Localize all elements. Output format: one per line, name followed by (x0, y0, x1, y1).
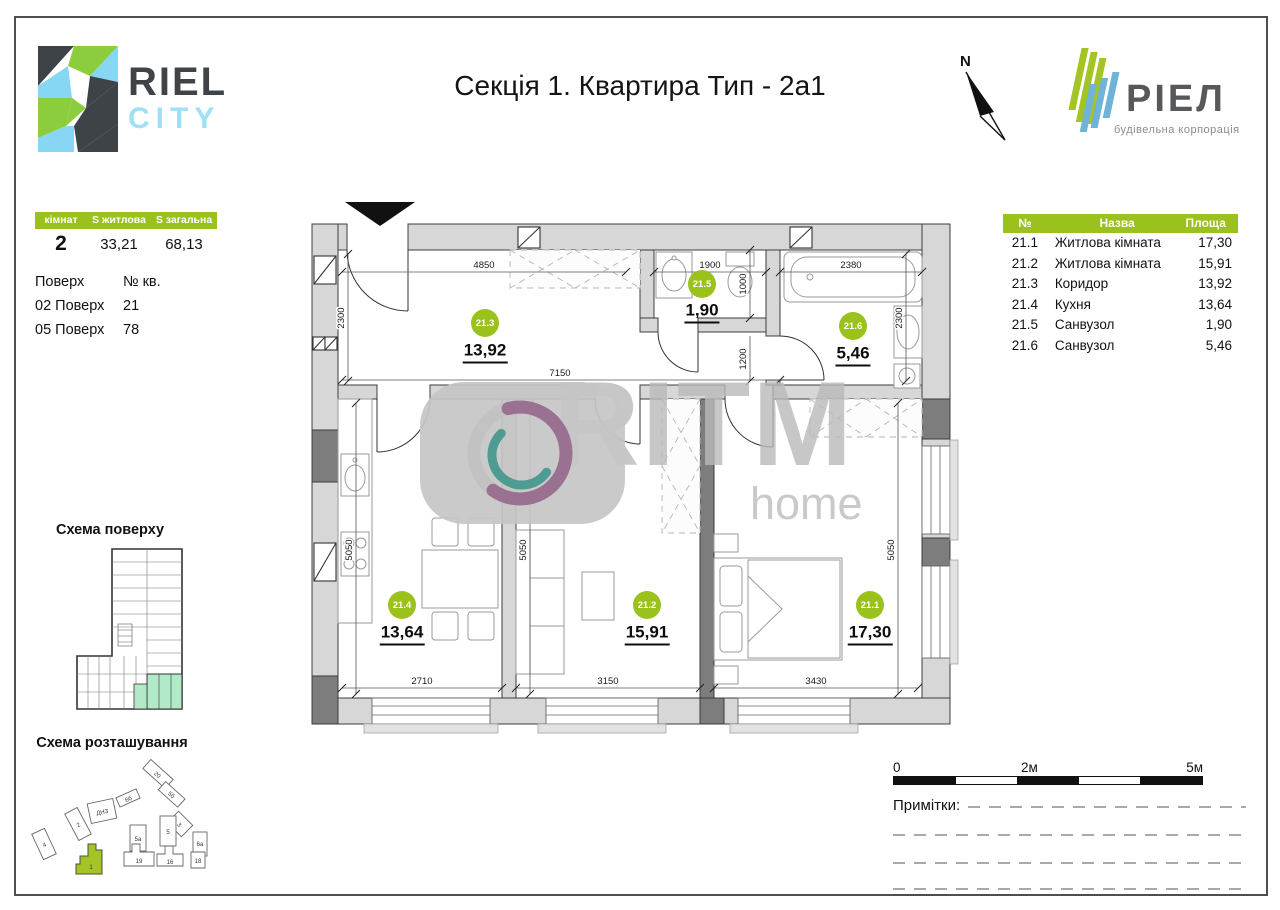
room-num: 21.2 (1003, 254, 1047, 275)
site-buildings (32, 760, 207, 868)
summary-col-living: S житлова (87, 212, 151, 229)
scale-bar: 0 2м 5м (893, 760, 1245, 786)
plan-bearing-walls (312, 399, 950, 724)
room-name: Санвузол (1047, 315, 1180, 336)
page-title: Секція 1. Квартира Тип - 2а1 (330, 70, 950, 102)
logo-mosaic (38, 46, 118, 152)
brand-name: РІЕЛ (1126, 80, 1226, 118)
room-num: 21.5 (1003, 315, 1047, 336)
floor-row: 02 Поверх 21 (35, 294, 173, 318)
room-badge-21-2: 21.2 (633, 591, 661, 619)
svg-text:16: 16 (167, 860, 174, 866)
kitchen-furniture (338, 399, 498, 640)
room-num: 21.6 (1003, 336, 1047, 357)
logo-riel-label: RIEL (128, 62, 227, 102)
floor-1-apt: 78 (123, 318, 173, 342)
summary-table-header: кімнат S житлова S загальна (35, 212, 217, 229)
room-num: 21.1 (1003, 233, 1047, 254)
table-row: 21.1 Житлова кімната 17,30 (1003, 233, 1238, 254)
riel-city-logo-text: RIEL CITY (128, 62, 227, 134)
room-name: Кухня (1047, 295, 1180, 316)
notes-line (968, 806, 1246, 808)
room-badge-21-5: 21.5 (688, 270, 716, 298)
room-area-21-6: 5,46 (835, 344, 870, 367)
living-furniture (516, 530, 614, 674)
scale-5m: 5м (1186, 760, 1203, 775)
room-area: 13,64 (1179, 295, 1238, 316)
brand-tagline: будівельна корпорація (1114, 124, 1240, 136)
summary-table-values: 2 33,21 68,13 (35, 232, 217, 256)
rooms-table: № Назва Площа 21.1 Житлова кімната 17,30… (1003, 214, 1238, 356)
scale-bar-graphic (893, 776, 1203, 785)
floor-plan: 4850 1900 2380 7150 2710 3150 3430 2300 … (310, 198, 970, 748)
scale-0: 0 (893, 760, 901, 775)
rooms-table-header: № Назва Площа (1003, 214, 1238, 233)
room-num: 21.3 (1003, 274, 1047, 295)
svg-text:6а: 6а (197, 842, 204, 848)
svg-text:19: 19 (136, 859, 143, 865)
room-area-21-4: 13,64 (380, 623, 425, 646)
floor-list-header: Поверх № кв. (35, 270, 173, 294)
room-badge-21-4: 21.4 (388, 591, 416, 619)
dim-label: 5050 (886, 539, 897, 560)
table-row: 21.3 Коридор 13,92 (1003, 274, 1238, 295)
floor-scheme-title: Схема поверху (25, 522, 195, 538)
room-name: Санвузол (1047, 336, 1180, 357)
room-badge-21-6: 21.6 (839, 312, 867, 340)
bedroom-furniture (714, 534, 842, 684)
room-area-21-1: 17,30 (848, 623, 893, 646)
notes-line (893, 888, 1246, 890)
svg-text:5а: 5а (135, 837, 142, 843)
dim-label: 3150 (597, 676, 618, 687)
table-row: 21.6 Санвузол 5,46 (1003, 336, 1238, 357)
room-area: 1,90 (1179, 315, 1238, 336)
room-area-21-5: 1,90 (684, 301, 719, 324)
room-badge-21-3: 21.3 (471, 309, 499, 337)
dim-label: 1200 (738, 348, 749, 369)
floor-plan-drawing: 4850 1900 2380 7150 2710 3150 3430 2300 … (310, 198, 970, 748)
room-area: 17,30 (1179, 233, 1238, 254)
apt-col-header: № кв. (123, 270, 173, 294)
svg-text:18: 18 (195, 859, 202, 865)
summary-living-value: 33,21 (87, 236, 151, 253)
dim-label: 3430 (805, 676, 826, 687)
table-row: 21.2 Житлова кімната 15,91 (1003, 254, 1238, 275)
dim-label: 7150 (549, 368, 570, 379)
floor-1-label: 05 Поверх (35, 318, 123, 342)
table-row: 21.5 Санвузол 1,90 (1003, 315, 1238, 336)
north-label: N (960, 53, 971, 70)
dim-label: 4850 (473, 260, 494, 271)
room-area: 15,91 (1179, 254, 1238, 275)
north-indicator: N (952, 48, 1014, 149)
table-row: 21.4 Кухня 13,64 (1003, 295, 1238, 316)
dim-label: 5050 (344, 539, 355, 560)
dim-label: 1000 (738, 273, 749, 294)
floor-col-header: Поверх (35, 270, 123, 294)
scale-2m: 2м (1021, 760, 1038, 775)
room-area: 13,92 (1179, 274, 1238, 295)
notes-line (893, 862, 1246, 864)
dim-label: 2380 (840, 260, 861, 271)
room-badge-21-1: 21.1 (856, 591, 884, 619)
room-area: 5,46 (1179, 336, 1238, 357)
riel-city-logo-mark (38, 46, 118, 157)
dim-label: 2710 (411, 676, 432, 687)
rooms-col-area: Площа (1179, 214, 1238, 233)
site-scheme: 20 5б 6б 3 2 ДНЗ 4 5а 5 6а 1 19 16 18 (30, 756, 215, 893)
rooms-col-name: Назва (1047, 214, 1180, 233)
site-scheme-title: Схема розташування (22, 735, 202, 751)
floor-0-apt: 21 (123, 294, 173, 318)
summary-total-value: 68,13 (151, 236, 217, 253)
dim-label: 2300 (336, 307, 347, 328)
room-name: Коридор (1047, 274, 1180, 295)
room-name: Житлова кімната (1047, 254, 1180, 275)
floor-scheme (72, 544, 192, 727)
notes-label: Примітки: (893, 797, 960, 814)
room-num: 21.4 (1003, 295, 1047, 316)
rooms-col-num: № (1003, 214, 1047, 233)
floor-0-label: 02 Поверх (35, 294, 123, 318)
room-name: Житлова кімната (1047, 233, 1180, 254)
entrance-arrow-icon (345, 202, 415, 226)
floor-row: 05 Поверх 78 (35, 318, 173, 342)
summary-col-total: S загальна (151, 212, 217, 229)
room-area-21-2: 15,91 (625, 623, 670, 646)
room-area-21-3: 13,92 (463, 341, 508, 364)
dim-label: 2300 (894, 307, 905, 328)
floor-apartment-list: Поверх № кв. 02 Поверх 21 05 Поверх 78 (35, 270, 173, 342)
summary-col-rooms: кімнат (35, 212, 87, 229)
notes-line (893, 834, 1246, 836)
dim-label: 5050 (518, 539, 529, 560)
summary-rooms-value: 2 (35, 232, 87, 256)
logo-city-label: CITY (128, 104, 227, 134)
